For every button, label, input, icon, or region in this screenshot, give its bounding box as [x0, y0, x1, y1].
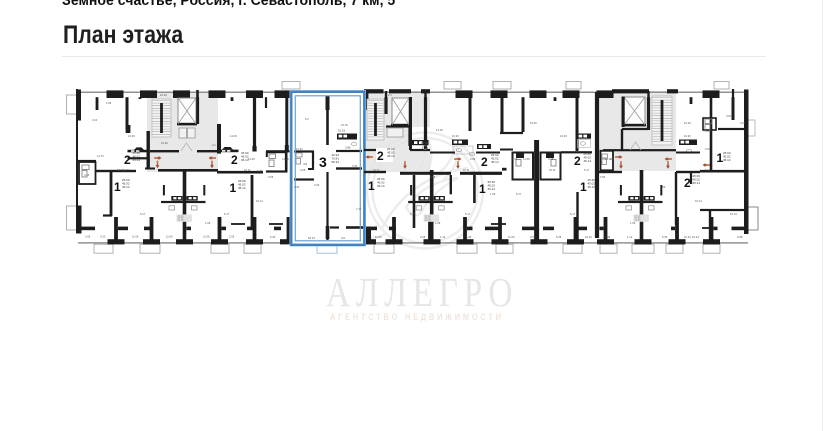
- svg-text:10.34: 10.34: [684, 235, 691, 239]
- svg-text:2: 2: [574, 154, 581, 168]
- svg-text:14.06: 14.06: [523, 157, 530, 161]
- svg-text:2.1: 2.1: [388, 93, 392, 97]
- svg-text:16.26: 16.26: [684, 121, 691, 125]
- svg-text:14.06: 14.06: [436, 128, 443, 132]
- svg-text:02.05: 02.05: [635, 219, 642, 222]
- svg-text:2.05: 2.05: [605, 235, 611, 239]
- svg-text:3.10: 3.10: [100, 235, 106, 239]
- svg-text:58.34: 58.34: [332, 160, 340, 164]
- svg-text:16.29: 16.29: [161, 141, 168, 145]
- svg-text:1: 1: [580, 180, 587, 194]
- svg-text:7.47: 7.47: [356, 207, 362, 211]
- svg-text:1: 1: [230, 181, 237, 195]
- svg-text:АГЕНТСТВО НЕДВИЖИМОСТИ: АГЕНТСТВО НЕДВИЖИМОСТИ: [330, 311, 504, 322]
- svg-text:2: 2: [481, 155, 488, 169]
- svg-text:2.05: 2.05: [85, 235, 91, 239]
- svg-text:4.46: 4.46: [84, 173, 90, 177]
- svg-text:1.12: 1.12: [627, 235, 633, 239]
- svg-text:2.05: 2.05: [737, 235, 743, 239]
- svg-text:45.14: 45.14: [387, 154, 395, 158]
- svg-text:5.17: 5.17: [705, 168, 711, 172]
- svg-text:02.05: 02.05: [425, 219, 432, 222]
- svg-text:5.35: 5.35: [466, 235, 472, 239]
- svg-text:3: 3: [319, 154, 327, 170]
- svg-text:15.11: 15.11: [244, 168, 251, 172]
- svg-text:1.86: 1.86: [106, 101, 112, 105]
- svg-text:4,6: 4,6: [303, 162, 308, 166]
- svg-text:11.06: 11.06: [166, 235, 173, 239]
- svg-text:5.17: 5.17: [516, 192, 522, 196]
- svg-text:5.17: 5.17: [410, 212, 416, 216]
- svg-text:1: 1: [114, 180, 121, 194]
- svg-text:1.69: 1.69: [660, 185, 666, 189]
- svg-text:10.34: 10.34: [585, 235, 592, 239]
- svg-text:11.06: 11.06: [132, 235, 139, 239]
- svg-text:1.69: 1.69: [630, 221, 636, 225]
- svg-text:45.14: 45.14: [488, 187, 496, 191]
- svg-text:14.06: 14.06: [282, 157, 289, 161]
- svg-text:16.26: 16.26: [530, 121, 537, 125]
- svg-text:15.15: 15.15: [341, 123, 348, 127]
- svg-text:16.14: 16.14: [695, 199, 702, 203]
- svg-text:3.55: 3.55: [430, 175, 436, 179]
- svg-text:2: 2: [377, 149, 384, 163]
- svg-text:3.67: 3.67: [705, 147, 711, 151]
- svg-text:4.03: 4.03: [314, 183, 320, 187]
- svg-text:4.08: 4.08: [300, 168, 306, 172]
- svg-text:1.69: 1.69: [205, 221, 211, 225]
- svg-text:45.14: 45.14: [584, 159, 592, 163]
- svg-text:16.27: 16.27: [308, 236, 315, 240]
- svg-text:45.14: 45.14: [133, 158, 141, 162]
- svg-text:14.76: 14.76: [97, 154, 104, 158]
- svg-text:16.14: 16.14: [256, 199, 263, 203]
- svg-text:3.55: 3.55: [600, 175, 606, 179]
- svg-text:6.25: 6.25: [270, 235, 276, 239]
- svg-text:1.69: 1.69: [490, 192, 496, 196]
- svg-text:1: 1: [479, 182, 486, 196]
- svg-text:2.1: 2.1: [212, 143, 216, 147]
- svg-text:45.14: 45.14: [122, 185, 130, 189]
- svg-text:16.71: 16.71: [123, 168, 130, 172]
- svg-text:4.6: 4.6: [610, 157, 614, 161]
- svg-text:5.17: 5.17: [465, 212, 471, 216]
- svg-text:11.06: 11.06: [203, 235, 210, 239]
- svg-text:16.29: 16.29: [128, 134, 135, 138]
- svg-text:16.29: 16.29: [421, 141, 428, 145]
- svg-text:3.55: 3.55: [268, 175, 274, 179]
- svg-text:2: 2: [231, 153, 238, 167]
- svg-text:45.14: 45.14: [693, 181, 701, 185]
- svg-text:4.08: 4.08: [512, 157, 518, 161]
- svg-text:5.17: 5.17: [140, 212, 146, 216]
- svg-text:2.67: 2.67: [740, 121, 746, 125]
- svg-text:14.06: 14.06: [248, 157, 255, 161]
- svg-text:15.11: 15.11: [463, 168, 470, 172]
- svg-text:5.35: 5.35: [662, 235, 668, 239]
- svg-text:02.05: 02.05: [178, 219, 185, 222]
- svg-text:45.14: 45.14: [238, 186, 246, 190]
- svg-text:16.29: 16.29: [452, 134, 459, 138]
- svg-text:6.29: 6.29: [257, 169, 263, 173]
- svg-text:7.67: 7.67: [352, 164, 358, 168]
- svg-text:10.91: 10.91: [296, 147, 303, 151]
- svg-text:1.12: 1.12: [440, 235, 446, 239]
- svg-text:4.03: 4.03: [294, 185, 300, 189]
- svg-text:15.15: 15.15: [338, 129, 345, 133]
- svg-text:15.11: 15.11: [549, 168, 556, 172]
- svg-text:2.55: 2.55: [530, 235, 536, 239]
- svg-text:3.10: 3.10: [92, 118, 98, 122]
- svg-text:2.05: 2.05: [420, 235, 426, 239]
- svg-text:1: 1: [368, 179, 375, 193]
- svg-text:4.08: 4.08: [548, 157, 554, 161]
- svg-text:45.14: 45.14: [377, 184, 385, 188]
- svg-text:14.06: 14.06: [230, 134, 237, 138]
- svg-text:16.14: 16.14: [730, 212, 737, 216]
- svg-text:5.17: 5.17: [584, 168, 590, 172]
- svg-text:2.55: 2.55: [229, 235, 235, 239]
- svg-text:11.06: 11.06: [508, 235, 515, 239]
- svg-text:16.29: 16.29: [560, 134, 567, 138]
- svg-text:2.86: 2.86: [470, 157, 476, 161]
- svg-text:45.14: 45.14: [588, 185, 596, 189]
- svg-text:1.69: 1.69: [435, 221, 441, 225]
- svg-text:16.26: 16.26: [684, 134, 691, 138]
- svg-text:11.06: 11.06: [375, 235, 382, 239]
- svg-text:45.14: 45.14: [723, 158, 731, 162]
- svg-text:2: 2: [124, 153, 131, 167]
- svg-text:45.14: 45.14: [491, 160, 499, 164]
- svg-text:5.17: 5.17: [570, 212, 576, 216]
- svg-text:5.2: 5.2: [305, 117, 309, 121]
- svg-text:АЛЛЕГРО: АЛЛЕГРО: [326, 271, 518, 316]
- svg-text:3.6: 3.6: [341, 236, 345, 240]
- svg-text:16.29: 16.29: [160, 93, 167, 97]
- svg-text:2.86: 2.86: [345, 146, 351, 150]
- svg-text:10.34: 10.34: [692, 235, 699, 239]
- svg-text:16.71: 16.71: [373, 168, 380, 172]
- svg-text:3.67: 3.67: [726, 114, 732, 118]
- svg-text:5.17: 5.17: [224, 212, 230, 216]
- svg-text:6.25: 6.25: [556, 235, 562, 239]
